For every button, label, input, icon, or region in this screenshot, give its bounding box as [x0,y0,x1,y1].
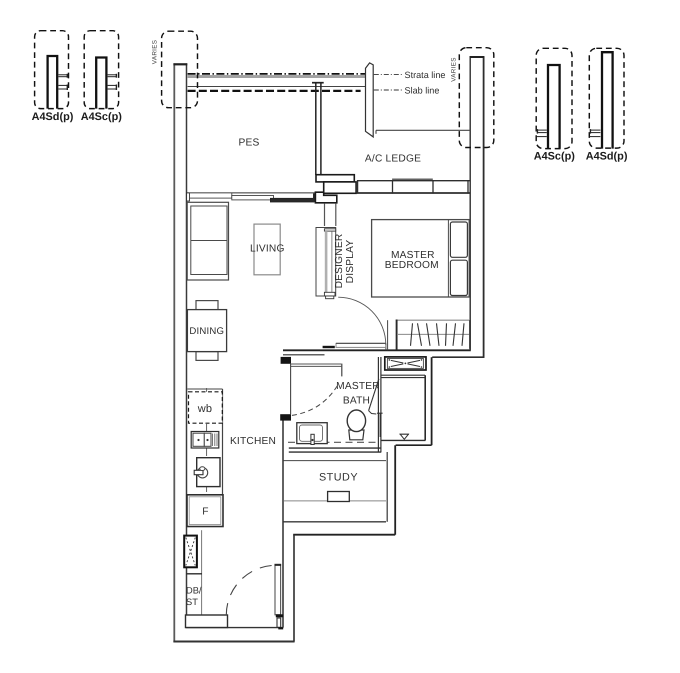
svg-text:wb: wb [197,403,212,415]
svg-text:A/C LEDGE: A/C LEDGE [365,154,421,165]
svg-text:A4Sc(p): A4Sc(p) [81,111,123,123]
svg-text:PES: PES [239,138,260,149]
svg-text:VARIES: VARIES [450,57,457,81]
svg-text:STUDY: STUDY [319,472,358,484]
svg-text:DESIGNER: DESIGNER [334,234,345,289]
svg-text:Slab line: Slab line [405,86,440,96]
svg-text:F: F [202,506,208,517]
svg-text:Strata line: Strata line [405,70,446,80]
svg-text:BATH: BATH [343,396,370,407]
svg-text:A4Sd(p): A4Sd(p) [586,151,628,163]
svg-text:DINING: DINING [189,326,224,337]
svg-text:MASTER: MASTER [336,381,380,392]
svg-text:ST: ST [186,597,198,607]
svg-text:A4Sd(p): A4Sd(p) [32,111,74,123]
svg-text:BEDROOM: BEDROOM [385,260,439,271]
svg-text:DISPLAY: DISPLAY [345,240,356,284]
svg-text:VARIES: VARIES [152,40,159,64]
svg-text:LIVING: LIVING [250,243,285,254]
svg-text:DB/: DB/ [186,586,202,596]
svg-text:A4Sc(p): A4Sc(p) [534,151,576,163]
svg-text:KITCHEN: KITCHEN [230,436,276,447]
